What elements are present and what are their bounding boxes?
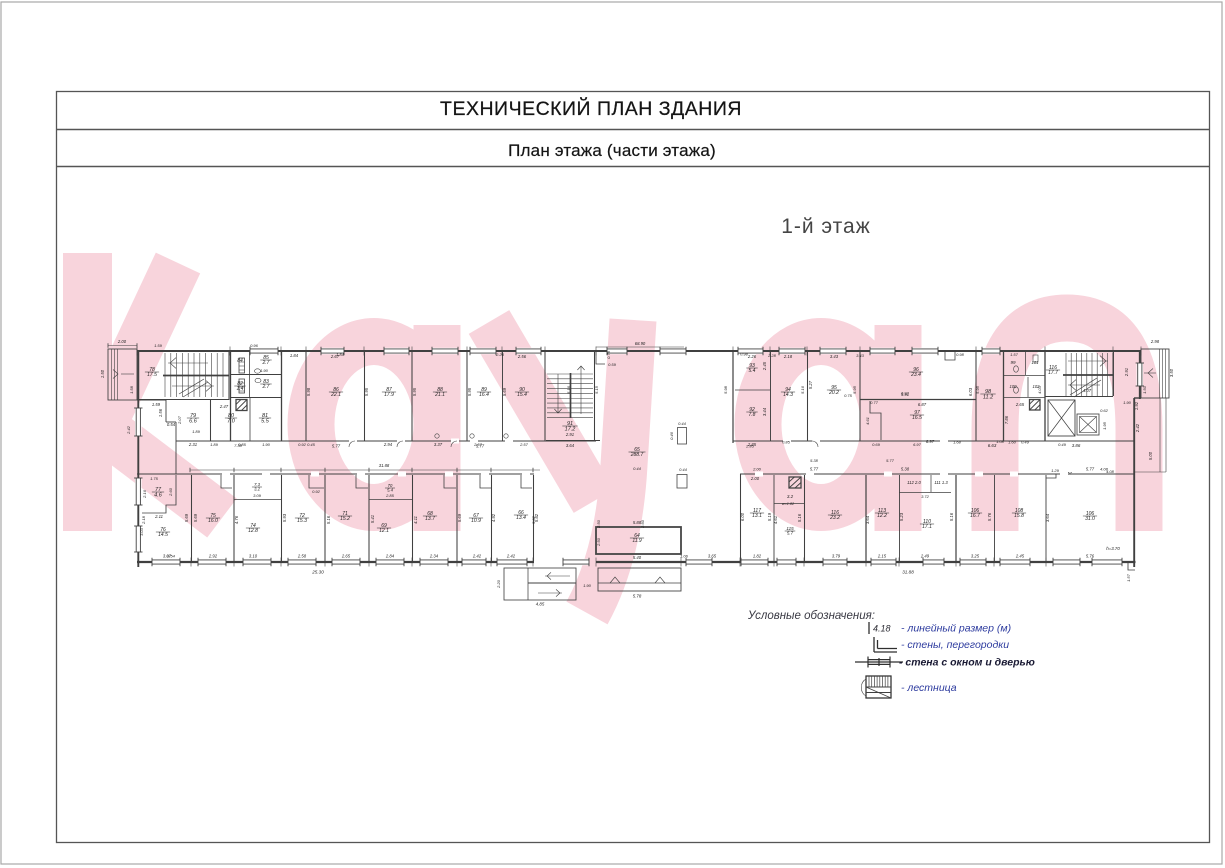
- svg-text:1.89: 1.89: [210, 442, 219, 447]
- svg-text:1.57: 1.57: [1010, 352, 1019, 357]
- svg-text:3.72: 3.72: [921, 494, 930, 499]
- svg-text:2.42: 2.42: [126, 425, 131, 435]
- svg-text:5.77: 5.77: [810, 467, 819, 472]
- svg-text:4.6: 4.6: [154, 493, 163, 499]
- svg-text:10.9: 10.9: [471, 518, 481, 524]
- svg-text:0.44: 0.44: [678, 421, 687, 426]
- svg-text:5.4: 5.4: [387, 487, 393, 492]
- svg-text:5.16: 5.16: [800, 385, 805, 394]
- svg-text:0.54: 0.54: [167, 554, 176, 559]
- svg-text:99: 99: [1010, 360, 1016, 365]
- svg-text:15.4: 15.4: [517, 392, 527, 398]
- svg-text:5.76: 5.76: [1086, 554, 1095, 559]
- svg-text:5.41: 5.41: [370, 515, 375, 523]
- svg-text:5.16: 5.16: [949, 512, 954, 521]
- svg-text:3.37: 3.37: [434, 442, 443, 447]
- svg-text:5.7: 5.7: [787, 531, 794, 536]
- svg-text:0.44: 0.44: [679, 467, 688, 472]
- svg-text:14.3: 14.3: [783, 392, 793, 398]
- svg-text:2.15: 2.15: [877, 554, 887, 559]
- svg-text:112 2.0: 112 2.0: [907, 480, 921, 485]
- svg-text:100: 100: [1010, 384, 1018, 389]
- svg-text:2.84: 2.84: [385, 554, 395, 559]
- svg-text:4.11: 4.11: [413, 516, 418, 524]
- svg-text:5.76: 5.76: [987, 512, 992, 521]
- svg-text:2.65: 2.65: [1015, 402, 1025, 407]
- svg-text:2.50: 2.50: [640, 519, 645, 529]
- svg-text:3.64: 3.64: [1045, 513, 1050, 522]
- svg-text:2.45: 2.45: [1015, 554, 1025, 559]
- svg-text:12.8: 12.8: [248, 528, 258, 534]
- svg-text:5.19: 5.19: [767, 512, 772, 521]
- svg-text:Условные обозначения:: Условные обозначения:: [747, 610, 875, 622]
- svg-text:0.98: 0.98: [740, 352, 749, 357]
- svg-text:5.4: 5.4: [749, 368, 756, 374]
- svg-text:23.4: 23.4: [910, 372, 921, 378]
- svg-text:20.2: 20.2: [828, 390, 839, 396]
- svg-text:1.82: 1.82: [753, 554, 762, 559]
- svg-text:31.88: 31.88: [379, 463, 390, 468]
- svg-text:5.40: 5.40: [633, 555, 642, 560]
- svg-text:2.26: 2.26: [747, 354, 757, 359]
- svg-text:5.69: 5.69: [184, 513, 189, 522]
- svg-text:1.95: 1.95: [1102, 421, 1107, 430]
- svg-text:1.59: 1.59: [152, 402, 161, 407]
- svg-text:2.31: 2.31: [188, 442, 197, 447]
- svg-text:25.30: 25.30: [311, 570, 324, 575]
- svg-text:3.86: 3.86: [1072, 443, 1081, 448]
- svg-text:3.2: 3.2: [787, 494, 794, 499]
- svg-text:3.03: 3.03: [139, 527, 144, 536]
- svg-text:13.1: 13.1: [752, 513, 762, 519]
- svg-text:6.00: 6.00: [740, 512, 745, 521]
- svg-text:5.69: 5.69: [193, 513, 198, 522]
- svg-text:2.47: 2.47: [219, 404, 229, 409]
- svg-text:0.92: 0.92: [312, 489, 321, 494]
- svg-text:0.98: 0.98: [956, 352, 965, 357]
- svg-text:0.49: 0.49: [1021, 440, 1030, 445]
- svg-text:5.95: 5.95: [364, 387, 369, 396]
- svg-text:4.61: 4.61: [865, 417, 870, 425]
- svg-text:1.57: 1.57: [1126, 573, 1131, 582]
- svg-text:1.90: 1.90: [262, 442, 271, 447]
- svg-text:4.08: 4.08: [1100, 467, 1109, 472]
- svg-text:2.56: 2.56: [517, 354, 527, 359]
- svg-text:3.43: 3.43: [856, 353, 865, 358]
- svg-text:2.07: 2.07: [177, 415, 182, 425]
- svg-text:4.07: 4.07: [1083, 388, 1092, 393]
- svg-text:16.4: 16.4: [479, 392, 489, 398]
- svg-text:4.85: 4.85: [536, 602, 545, 607]
- svg-text:1.68: 1.68: [953, 440, 962, 445]
- svg-text:2.65: 2.65: [341, 554, 351, 559]
- svg-text:3.10: 3.10: [249, 554, 258, 559]
- svg-text:5.82: 5.82: [531, 515, 536, 524]
- svg-text:2.58: 2.58: [297, 554, 307, 559]
- svg-text:2.28: 2.28: [767, 353, 777, 358]
- svg-text:13.7: 13.7: [425, 516, 435, 522]
- svg-text:2.92: 2.92: [208, 554, 218, 559]
- svg-text:7.0: 7.0: [227, 419, 236, 425]
- svg-text:17.7: 17.7: [1048, 370, 1058, 376]
- svg-text:5.95: 5.95: [852, 385, 857, 394]
- svg-text:5.98: 5.98: [306, 387, 311, 396]
- svg-text:1.90: 1.90: [583, 583, 592, 588]
- svg-text:0.54: 0.54: [167, 422, 176, 427]
- svg-text:11.2: 11.2: [983, 395, 993, 401]
- svg-text:2.45: 2.45: [762, 361, 767, 371]
- svg-text:2.00: 2.00: [117, 339, 127, 344]
- svg-text:31.88: 31.88: [902, 570, 914, 575]
- svg-text:4.18: 4.18: [873, 624, 891, 634]
- svg-text:0.49: 0.49: [1058, 442, 1067, 447]
- svg-text:101: 101: [1032, 360, 1039, 365]
- svg-text:- стена с окном и дверью: - стена с окном и дверью: [899, 657, 1035, 669]
- svg-text:3.09: 3.09: [253, 493, 262, 498]
- svg-text:5.15: 5.15: [594, 385, 599, 394]
- svg-text:6.63: 6.63: [988, 443, 997, 448]
- svg-text:15.8: 15.8: [1014, 513, 1024, 519]
- svg-text:5.98: 5.98: [723, 385, 728, 394]
- svg-text:5.38: 5.38: [810, 458, 819, 463]
- svg-text:0.85: 0.85: [782, 440, 791, 445]
- svg-text:2.94: 2.94: [383, 442, 393, 447]
- svg-text:14.5: 14.5: [158, 532, 168, 538]
- svg-text:5.77: 5.77: [1086, 467, 1095, 472]
- svg-text:2.18: 2.18: [141, 515, 146, 525]
- svg-text:2.42: 2.42: [1135, 423, 1140, 433]
- svg-text:5.23: 5.23: [899, 512, 904, 521]
- svg-text:3.25: 3.25: [971, 554, 980, 559]
- svg-text:2.00: 2.00: [752, 467, 762, 472]
- svg-text:2.42: 2.42: [506, 554, 516, 559]
- svg-text:2.11: 2.11: [154, 514, 163, 519]
- svg-text:7.8: 7.8: [749, 412, 756, 418]
- svg-text:3.2: 3.2: [254, 486, 260, 491]
- svg-text:5.16: 5.16: [326, 515, 331, 524]
- svg-text:2.7: 2.7: [262, 360, 270, 366]
- svg-text:0.77: 0.77: [870, 400, 879, 405]
- svg-text:3.43: 3.43: [830, 354, 839, 359]
- svg-text:5.95: 5.95: [975, 385, 980, 394]
- svg-text:3.64: 3.64: [566, 443, 575, 448]
- svg-text:5.16: 5.16: [797, 513, 802, 522]
- svg-text:1.90: 1.90: [260, 368, 269, 373]
- svg-text:5.38: 5.38: [901, 467, 910, 472]
- svg-text:12.1: 12.1: [379, 528, 389, 534]
- svg-text:0.62: 0.62: [1100, 408, 1109, 413]
- svg-text:2.85: 2.85: [385, 493, 395, 498]
- svg-text:1.50: 1.50: [1142, 385, 1147, 394]
- svg-text:5.78: 5.78: [633, 594, 642, 599]
- svg-text:1.84: 1.84: [336, 352, 345, 357]
- svg-text:0.96: 0.96: [250, 343, 259, 348]
- svg-text:- лестница: - лестница: [901, 682, 957, 694]
- svg-text:1.90: 1.90: [1123, 400, 1132, 405]
- svg-text:3.64: 3.64: [865, 515, 870, 524]
- svg-text:1.89: 1.89: [192, 429, 201, 434]
- svg-text:2.24: 2.24: [495, 352, 505, 357]
- svg-text:6.97: 6.97: [913, 442, 922, 447]
- svg-text:3.44: 3.44: [762, 407, 767, 416]
- svg-text:5.69: 5.69: [457, 513, 462, 522]
- svg-text:4.76: 4.76: [234, 515, 239, 524]
- svg-text:5.77: 5.77: [886, 458, 895, 463]
- svg-text:1.56: 1.56: [158, 408, 163, 417]
- svg-text:5.5: 5.5: [261, 419, 270, 425]
- svg-text:2.50: 2.50: [596, 537, 601, 547]
- svg-text:2.57: 2.57: [473, 442, 483, 447]
- svg-text:1.50: 1.50: [100, 369, 105, 378]
- svg-text:2.60: 2.60: [168, 487, 173, 497]
- svg-text:7.38: 7.38: [234, 443, 243, 448]
- svg-text:0.78: 0.78: [606, 350, 611, 359]
- svg-text:5.95: 5.95: [467, 387, 472, 396]
- svg-text:2.91: 2.91: [565, 432, 574, 437]
- svg-text:1.59: 1.59: [154, 343, 163, 348]
- svg-text:2.7: 2.7: [262, 384, 270, 390]
- svg-text:3.65: 3.65: [708, 554, 717, 559]
- svg-text:17.1: 17.1: [922, 524, 932, 530]
- svg-text:- линейный размер (м): - линейный размер (м): [901, 623, 1011, 635]
- svg-text:2.34: 2.34: [429, 554, 439, 559]
- svg-text:1.92: 1.92: [1134, 401, 1139, 410]
- svg-text:6.03: 6.03: [968, 387, 973, 396]
- svg-text:1.84: 1.84: [290, 353, 299, 358]
- svg-text:17.5: 17.5: [147, 372, 157, 378]
- svg-text:- стены, перегородки: - стены, перегородки: [901, 639, 1009, 651]
- svg-text:0.46: 0.46: [669, 431, 674, 440]
- svg-text:0.44: 0.44: [633, 466, 642, 471]
- svg-text:2.57: 2.57: [519, 442, 529, 447]
- svg-text:2.42: 2.42: [472, 554, 482, 559]
- svg-text:1.29: 1.29: [1051, 468, 1060, 473]
- svg-text:21.1: 21.1: [434, 392, 445, 398]
- svg-text:4.92: 4.92: [491, 513, 496, 522]
- svg-text:5.00: 5.00: [1148, 451, 1153, 460]
- svg-text:31.0: 31.0: [1085, 516, 1095, 522]
- svg-text:0.59: 0.59: [608, 362, 617, 367]
- svg-text:84: 84: [237, 358, 243, 364]
- svg-text:6.92: 6.92: [901, 391, 910, 396]
- svg-text:15.3: 15.3: [297, 518, 307, 524]
- svg-text:2.98: 2.98: [1150, 339, 1160, 344]
- svg-text:5.69: 5.69: [502, 387, 507, 396]
- svg-text:15.2: 15.2: [340, 516, 350, 522]
- svg-text:6.87: 6.87: [918, 402, 927, 407]
- svg-text:2.85: 2.85: [745, 444, 755, 449]
- svg-text:12.2: 12.2: [877, 513, 887, 519]
- svg-text:13.4: 13.4: [516, 515, 526, 521]
- svg-text:6.97: 6.97: [926, 439, 935, 444]
- svg-text:16.7: 16.7: [970, 513, 980, 519]
- svg-text:2.91: 2.91: [1124, 368, 1129, 377]
- svg-text:111 1.3: 111 1.3: [934, 480, 948, 485]
- svg-text:0.69: 0.69: [872, 442, 881, 447]
- svg-text:h=3.70: h=3.70: [1106, 546, 1120, 551]
- svg-text:5.95: 5.95: [412, 387, 417, 396]
- svg-text:2.20: 2.20: [496, 579, 501, 589]
- svg-text:1.58: 1.58: [129, 385, 134, 394]
- svg-text:1-й этаж: 1-й этаж: [781, 215, 871, 238]
- svg-text:2.49: 2.49: [920, 554, 930, 559]
- svg-text:4.61: 4.61: [773, 516, 778, 524]
- svg-text:3.79: 3.79: [832, 554, 841, 559]
- svg-text:w=1.82: w=1.82: [782, 502, 795, 506]
- svg-text:5.16: 5.16: [566, 385, 571, 394]
- svg-text:4.03: 4.03: [1037, 385, 1042, 394]
- svg-text:11.9: 11.9: [632, 538, 642, 544]
- svg-text:5.77: 5.77: [332, 444, 341, 449]
- svg-text:5.27: 5.27: [808, 380, 813, 389]
- svg-text:23.2: 23.2: [829, 515, 840, 521]
- svg-text:16.0: 16.0: [208, 518, 218, 524]
- svg-text:0.45: 0.45: [307, 442, 316, 447]
- svg-text:План этажа (части этажа): План этажа (части этажа): [508, 141, 716, 160]
- svg-text:6.6: 6.6: [189, 419, 198, 425]
- svg-text:2.18: 2.18: [783, 354, 793, 359]
- svg-text:ТЕХНИЧЕСКИЙ ПЛАН ЗДАНИЯ: ТЕХНИЧЕСКИЙ ПЛАН ЗДАНИЯ: [440, 96, 742, 120]
- svg-text:16.5: 16.5: [912, 415, 922, 421]
- svg-text:0.92: 0.92: [298, 442, 307, 447]
- svg-text:68.90: 68.90: [635, 341, 646, 346]
- svg-text:2.00: 2.00: [750, 476, 760, 481]
- svg-text:1.60: 1.60: [1008, 440, 1017, 445]
- svg-text:2.50: 2.50: [596, 519, 601, 529]
- svg-text:5.93: 5.93: [282, 513, 287, 522]
- svg-text:17.9: 17.9: [384, 392, 394, 398]
- svg-text:1.06: 1.06: [680, 554, 689, 559]
- svg-text:1.75: 1.75: [150, 476, 159, 481]
- svg-text:2.16: 2.16: [142, 489, 147, 499]
- svg-text:3.50: 3.50: [1169, 368, 1174, 377]
- svg-text:7.86: 7.86: [1004, 415, 1009, 424]
- svg-text:288.7: 288.7: [630, 452, 644, 458]
- svg-text:22.1: 22.1: [330, 392, 341, 398]
